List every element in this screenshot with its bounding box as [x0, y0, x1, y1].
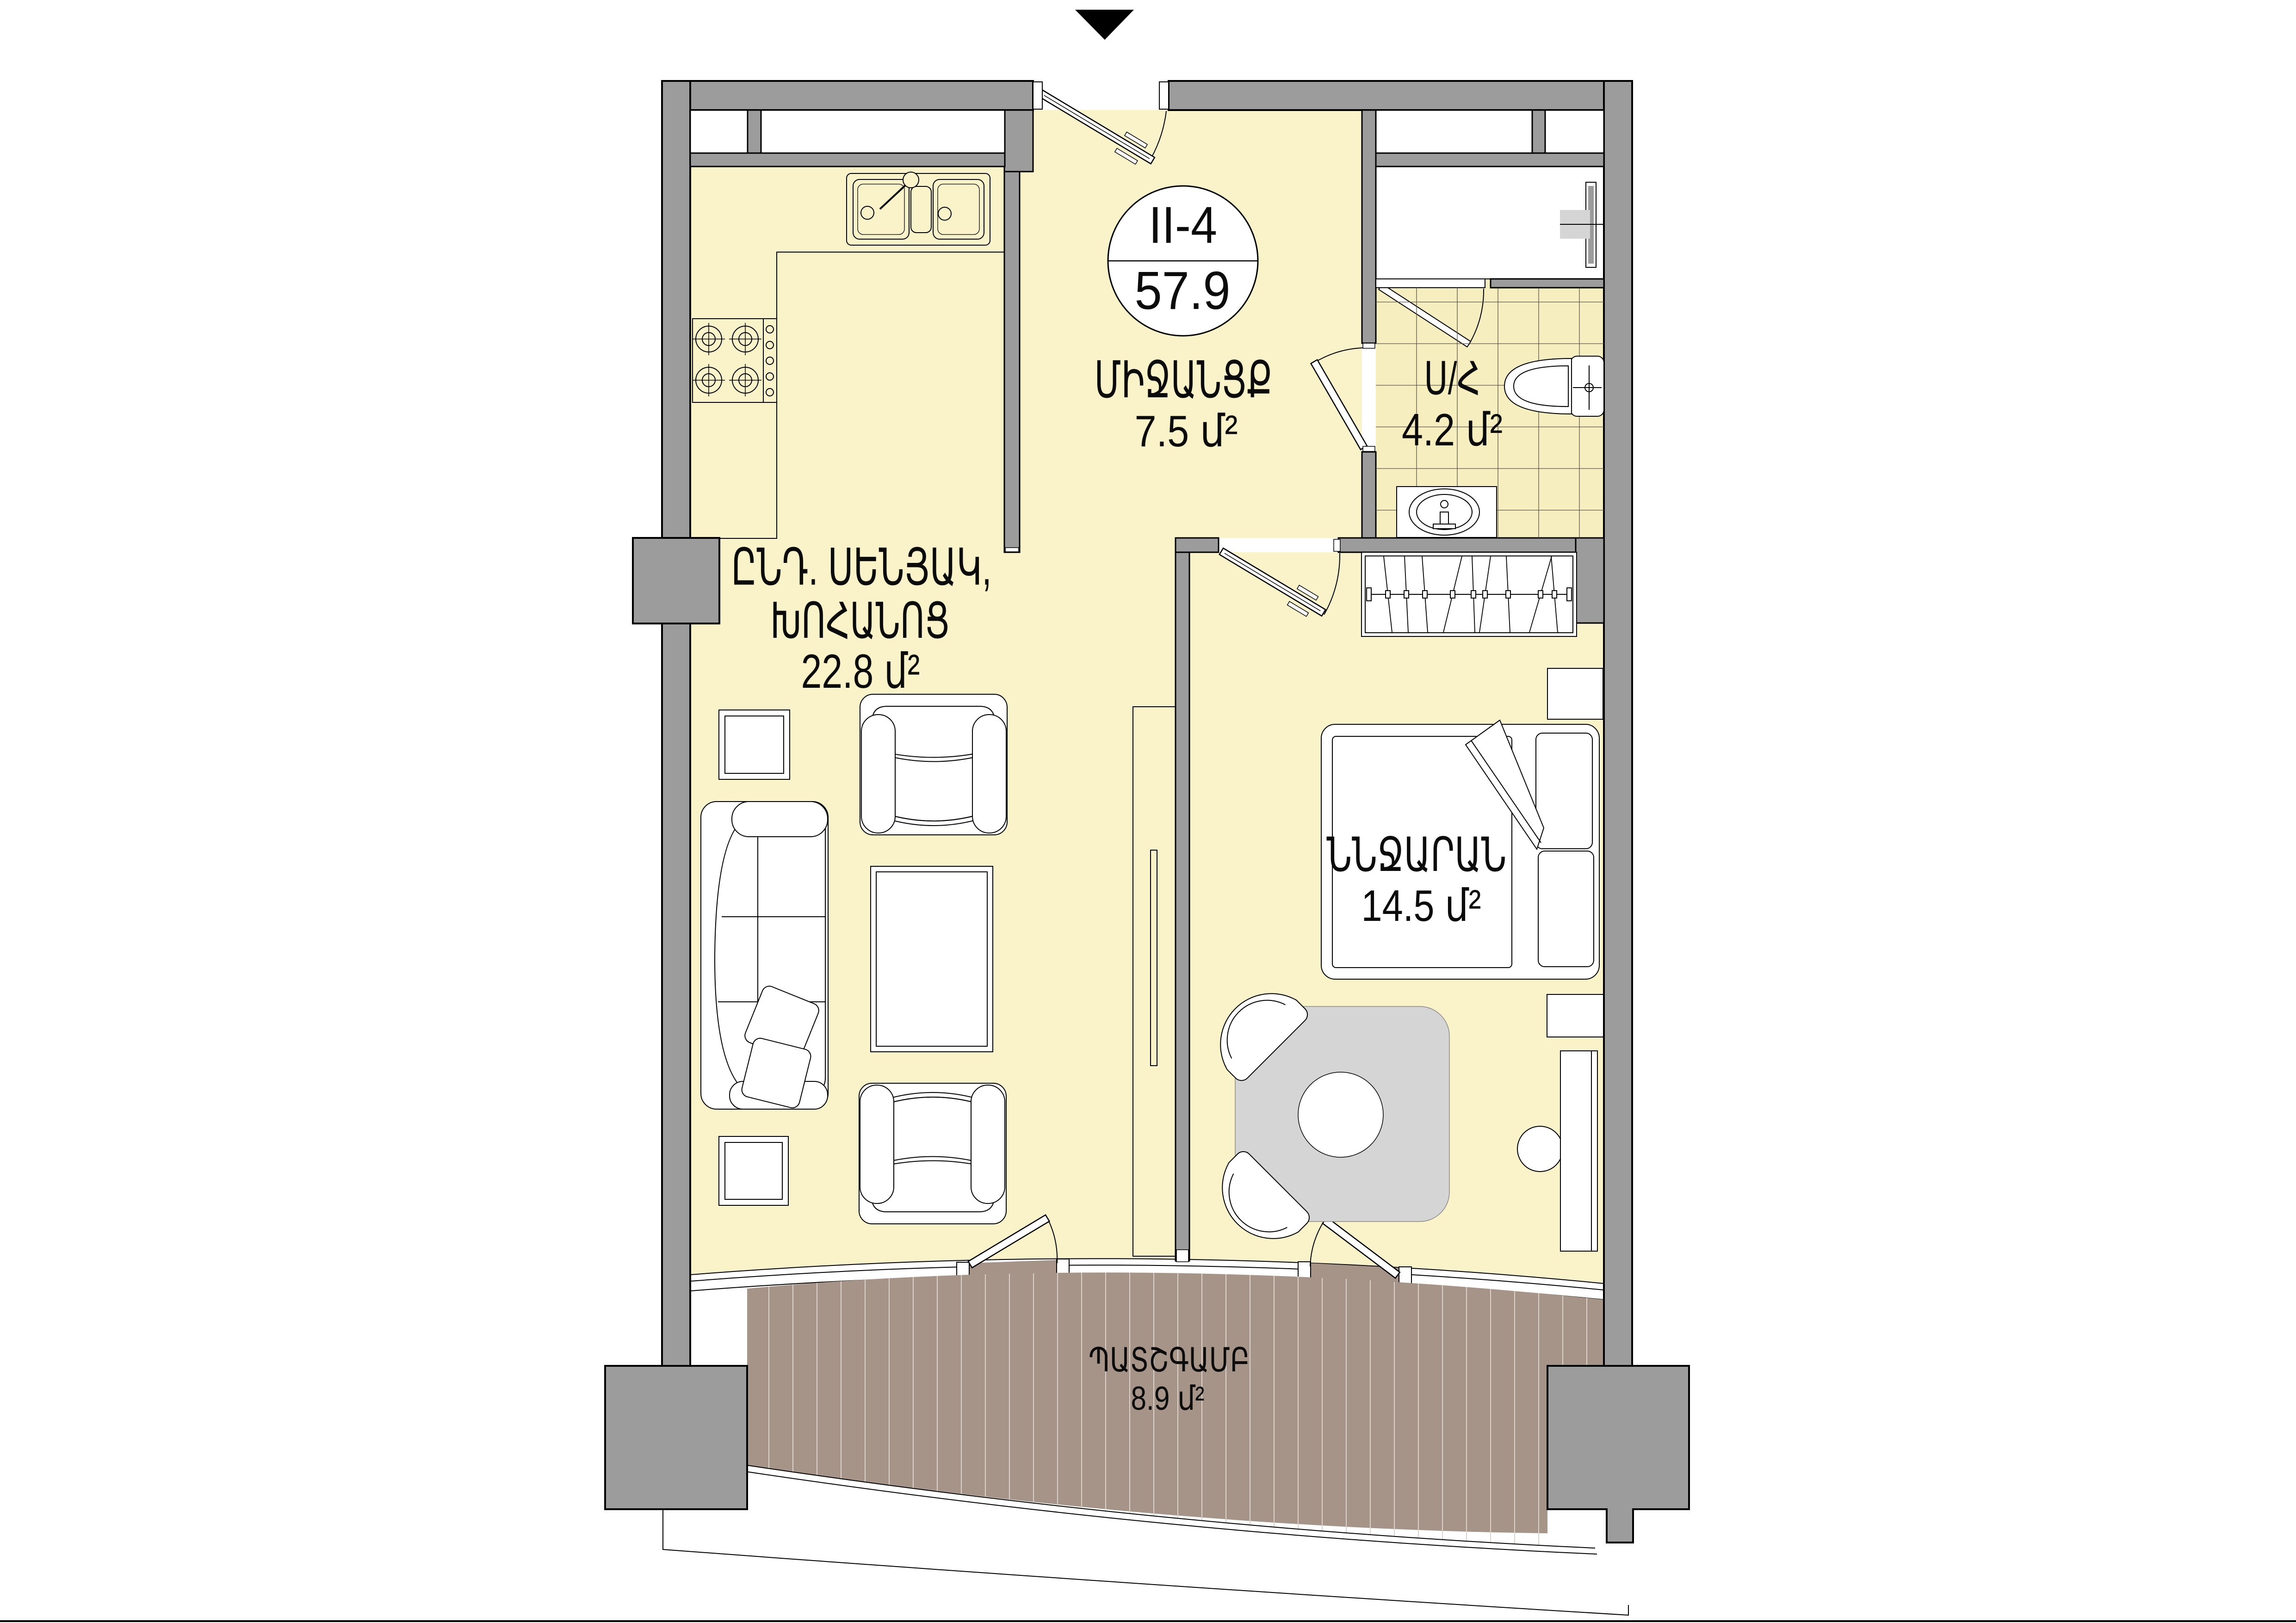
svg-text:II-4: II-4	[1149, 196, 1217, 254]
svg-text:ԽՈՀԱՆՈՑ: ԽՈՀԱՆՈՑ	[770, 593, 950, 648]
svg-text:ՊԱՏՇԳԱՄԲ: ՊԱՏՇԳԱՄԲ	[1089, 1342, 1250, 1379]
svg-text:Ս/Հ: Ս/Հ	[1424, 353, 1480, 404]
svg-text:4.2 մ²: 4.2 մ²	[1402, 404, 1503, 455]
svg-text:7.5 մ²: 7.5 մ²	[1135, 407, 1238, 456]
svg-text:ՄԻՋԱՆՑՔ: ՄԻՋԱՆՑՔ	[1095, 352, 1273, 408]
svg-text:14.5 մ²: 14.5 մ²	[1362, 881, 1481, 931]
svg-text:8.9 մ²: 8.9 մ²	[1131, 1380, 1205, 1417]
svg-text:57.9: 57.9	[1135, 260, 1231, 321]
svg-text:ՆՆՋԱՐԱՆ: ՆՆՋԱՐԱՆ	[1327, 828, 1507, 881]
svg-text:22.8 մ²: 22.8 մ²	[801, 645, 920, 698]
svg-text:ԸՆԴ. ՍԵՆՅԱԿ,: ԸՆԴ. ՍԵՆՅԱԿ,	[731, 539, 992, 596]
